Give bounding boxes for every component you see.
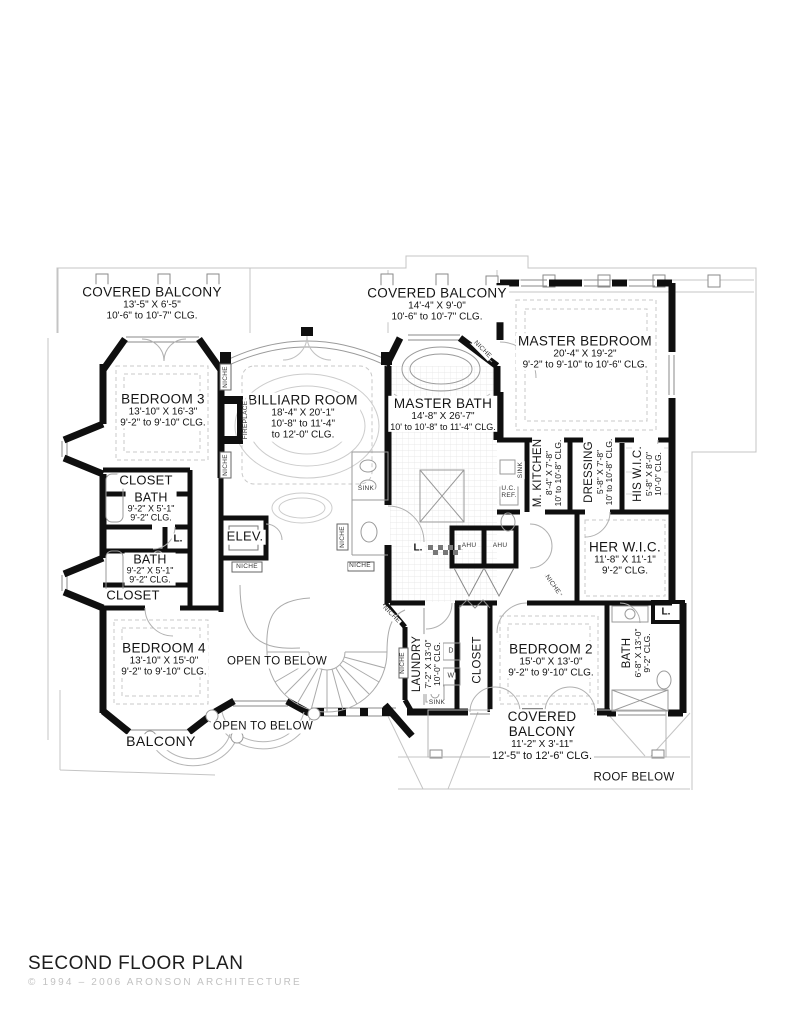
room-ceiling: 10'-0" CLG. — [654, 446, 664, 502]
room-name: DRESSING — [583, 439, 596, 506]
room-label-m-kitchen: M. KITCHEN 8'-4" X 7'-8" 10' to 10'-8" C… — [532, 437, 564, 509]
niche-label-9: NICHE — [400, 651, 407, 675]
room-ceiling: 9'-2" CLG. — [128, 514, 175, 523]
niche-label-2: NICHE — [223, 453, 230, 477]
room-label-covered-balcony-top-left: COVERED BALCONY 13'-5" X 6'-5" 10'-6" to… — [80, 284, 224, 321]
room-dims: 13'-10" X 16'-3" — [120, 406, 205, 417]
room-ceiling: 10' to 10'-8" to 11'-4" CLG. — [390, 422, 495, 432]
niche-label-4: NICHE — [340, 525, 347, 549]
room-name: ELEV. — [227, 530, 264, 545]
room-ceiling-2: to 12'-0" CLG. — [248, 430, 358, 441]
room-name: COVERED BALCONY — [367, 285, 507, 300]
room-name: BATH — [127, 553, 174, 567]
room-label-his-wic: HIS W.I.C. 5'-8" X 8'-0" 10'-0" CLG. — [632, 444, 664, 504]
room-name: LAUNDRY — [411, 636, 424, 692]
sink-label-kitchen: SINK — [518, 461, 525, 479]
room-label-closet-upper: CLOSET — [117, 474, 174, 489]
room-label-master-bedroom: MASTER BEDROOM 20'-4" X 19'-2" 9'-2" to … — [516, 333, 654, 370]
balcony-label: BALCONY — [124, 734, 198, 750]
room-ceiling: 9'-2" to 9'-10" CLG. — [120, 418, 205, 429]
room-ceiling: 9'-2" CLG. — [589, 566, 661, 577]
room-ceiling: 9'-2" CLG. — [643, 629, 653, 678]
room-ceiling: 10' to 10'-8" CLG. — [554, 439, 564, 507]
room-dims: 11'-2" X 3'-11" — [492, 739, 592, 750]
floor-plan-drawing — [0, 0, 800, 1035]
room-dims: 14'-8" X 26'-7" — [390, 411, 495, 422]
niche-label-3: NICHE — [235, 564, 259, 571]
room-name: BILLIARD ROOM — [248, 393, 358, 408]
room-label-closet-lower: CLOSET — [104, 589, 161, 604]
room-name: CLOSET — [106, 589, 159, 604]
room-name: MASTER BEDROOM — [518, 333, 652, 348]
sink-label-laundry: SINK — [428, 700, 446, 707]
room-label-bath-bedroom2: BATH 6'-8" X 13'-0" 9'-2" CLG. — [621, 627, 653, 680]
fireplace-label: FIREPLACE — [243, 400, 250, 441]
room-ceiling: 10' to 10'-8" CLG. — [605, 439, 615, 506]
room-label-billiard-room: BILLIARD ROOM 18'-4" X 20'-1" 10'-8" to … — [246, 393, 360, 442]
room-label-bath-lower: BATH 9'-2" X 5'-1" 9'-2" CLG. — [125, 553, 176, 586]
room-label-her-wic: HER W.I.C. 11'-8" X 11'-1" 9'-2" CLG. — [587, 539, 663, 576]
room-ceiling: 9'-2" to 9'-10" CLG. — [121, 667, 206, 678]
room-name: HER W.I.C. — [589, 539, 661, 554]
room-name: BEDROOM 3 — [120, 391, 205, 406]
plan-title: SECOND FLOOR PLAN — [28, 953, 243, 975]
room-ceiling: 10'-0" CLG. — [433, 636, 443, 692]
room-name: COVERED BALCONY — [82, 284, 222, 299]
room-label-bath-upper: BATH 9'-2" X 5'-1" 9'-2" CLG. — [126, 491, 177, 524]
room-label-bedroom-3: BEDROOM 3 13'-10" X 16'-3" 9'-2" to 9'-1… — [118, 391, 207, 428]
room-dims: 20'-4" X 19'-2" — [518, 348, 652, 359]
stair-fan — [240, 585, 405, 712]
niche-label-5: NICHE — [348, 563, 372, 570]
billiard-bay — [220, 327, 392, 366]
room-dims: 11'-8" X 11'-1" — [589, 554, 661, 565]
room-label-covered-balcony-bottom: COVERED BALCONY 11'-2" X 3'-11" 12'-5" t… — [490, 709, 594, 763]
room-name: BATH — [621, 629, 634, 678]
uc-ref-line2: REF. — [501, 492, 516, 499]
room-name-2: BALCONY — [492, 724, 592, 739]
sink-label-master-bath: SINK — [357, 486, 375, 493]
room-ceiling: 10'-6" to 10'-7" CLG. — [82, 311, 222, 322]
room-name: BEDROOM 2 — [508, 641, 593, 656]
room-name: MASTER BATH — [390, 396, 495, 411]
room-name: COVERED — [492, 709, 592, 724]
uc-ref-label: U.C. REF. — [500, 485, 517, 499]
room-ceiling: 10'-8" to 11'-4" — [248, 419, 358, 430]
room-dims: 15'-0" X 13'-0" — [508, 656, 593, 667]
room-name: CLOSET — [472, 636, 485, 683]
room-ceiling: 9'-2" CLG. — [127, 576, 174, 585]
ahu-label-2: AHU — [492, 543, 509, 550]
room-ceiling: 9'-2" to 9'-10" CLG. — [508, 668, 593, 679]
room-dims: 13'-10" X 15'-0" — [121, 655, 206, 666]
copyright-notice: © 1994 – 2006 ARONSON ARCHITECTURE — [28, 977, 302, 988]
room-label-elevator: ELEV. — [225, 530, 266, 545]
room-label-bedroom-2: BEDROOM 2 15'-0" X 13'-0" 9'-2" to 9'-10… — [506, 641, 595, 678]
room-ceiling: 9'-2" to 9'-10" to 10'-6" CLG. — [518, 360, 652, 371]
niche-label-1: NICHE — [223, 365, 230, 389]
room-name: BEDROOM 4 — [121, 640, 206, 655]
linen-closet-bath-label: L. — [412, 542, 425, 553]
washer-label: W — [447, 673, 456, 680]
room-name: BATH — [128, 491, 175, 505]
room-name: CLOSET — [119, 474, 172, 489]
room-label-bedroom-4: BEDROOM 4 13'-10" X 15'-0" 9'-2" to 9'-1… — [119, 640, 208, 677]
room-dims: 13'-5" X 6'-5" — [82, 299, 222, 310]
room-label-closet-bedroom2: CLOSET — [472, 634, 485, 685]
room-dims: 14'-4" X 9'-0" — [367, 300, 507, 311]
room-label-master-bath: MASTER BATH 14'-8" X 26'-7" 10' to 10'-8… — [388, 396, 497, 432]
uc-ref-line1: U.C. — [501, 485, 515, 492]
room-name: M. KITCHEN — [532, 439, 545, 507]
room-label-laundry: LAUNDRY 7'-2" X 13'-0" 10'-0" CLG. — [411, 634, 443, 694]
room-ceiling: 12'-5" to 12'-6" CLG. — [492, 751, 592, 763]
room-name: HIS W.I.C. — [632, 446, 645, 502]
room-label-dressing: DRESSING 5'-8" X 7'-8" 10' to 10'-8" CLG… — [583, 437, 615, 508]
roof-below-label: ROOF BELOW — [592, 772, 677, 785]
open-to-below-upper-label: OPEN TO BELOW — [225, 656, 329, 669]
room-ceiling: 10'-6" to 10'-7" CLG. — [367, 312, 507, 323]
bath-tile-lower — [390, 430, 497, 602]
dryer-label: D — [447, 648, 454, 655]
ahu-label-1: AHU — [461, 543, 478, 550]
room-dims: 18'-4" X 20'-1" — [248, 408, 358, 419]
linen-closet-label: L. — [172, 533, 185, 544]
open-to-below-lower-label: OPEN TO BELOW — [211, 721, 315, 734]
floor-plan-page: COVERED BALCONY 13'-5" X 6'-5" 10'-6" to… — [0, 0, 800, 1035]
linen-closet-bedroom2-label: L. — [660, 606, 673, 617]
room-label-covered-balcony-top-center: COVERED BALCONY 14'-4" X 9'-0" 10'-6" to… — [365, 285, 509, 322]
